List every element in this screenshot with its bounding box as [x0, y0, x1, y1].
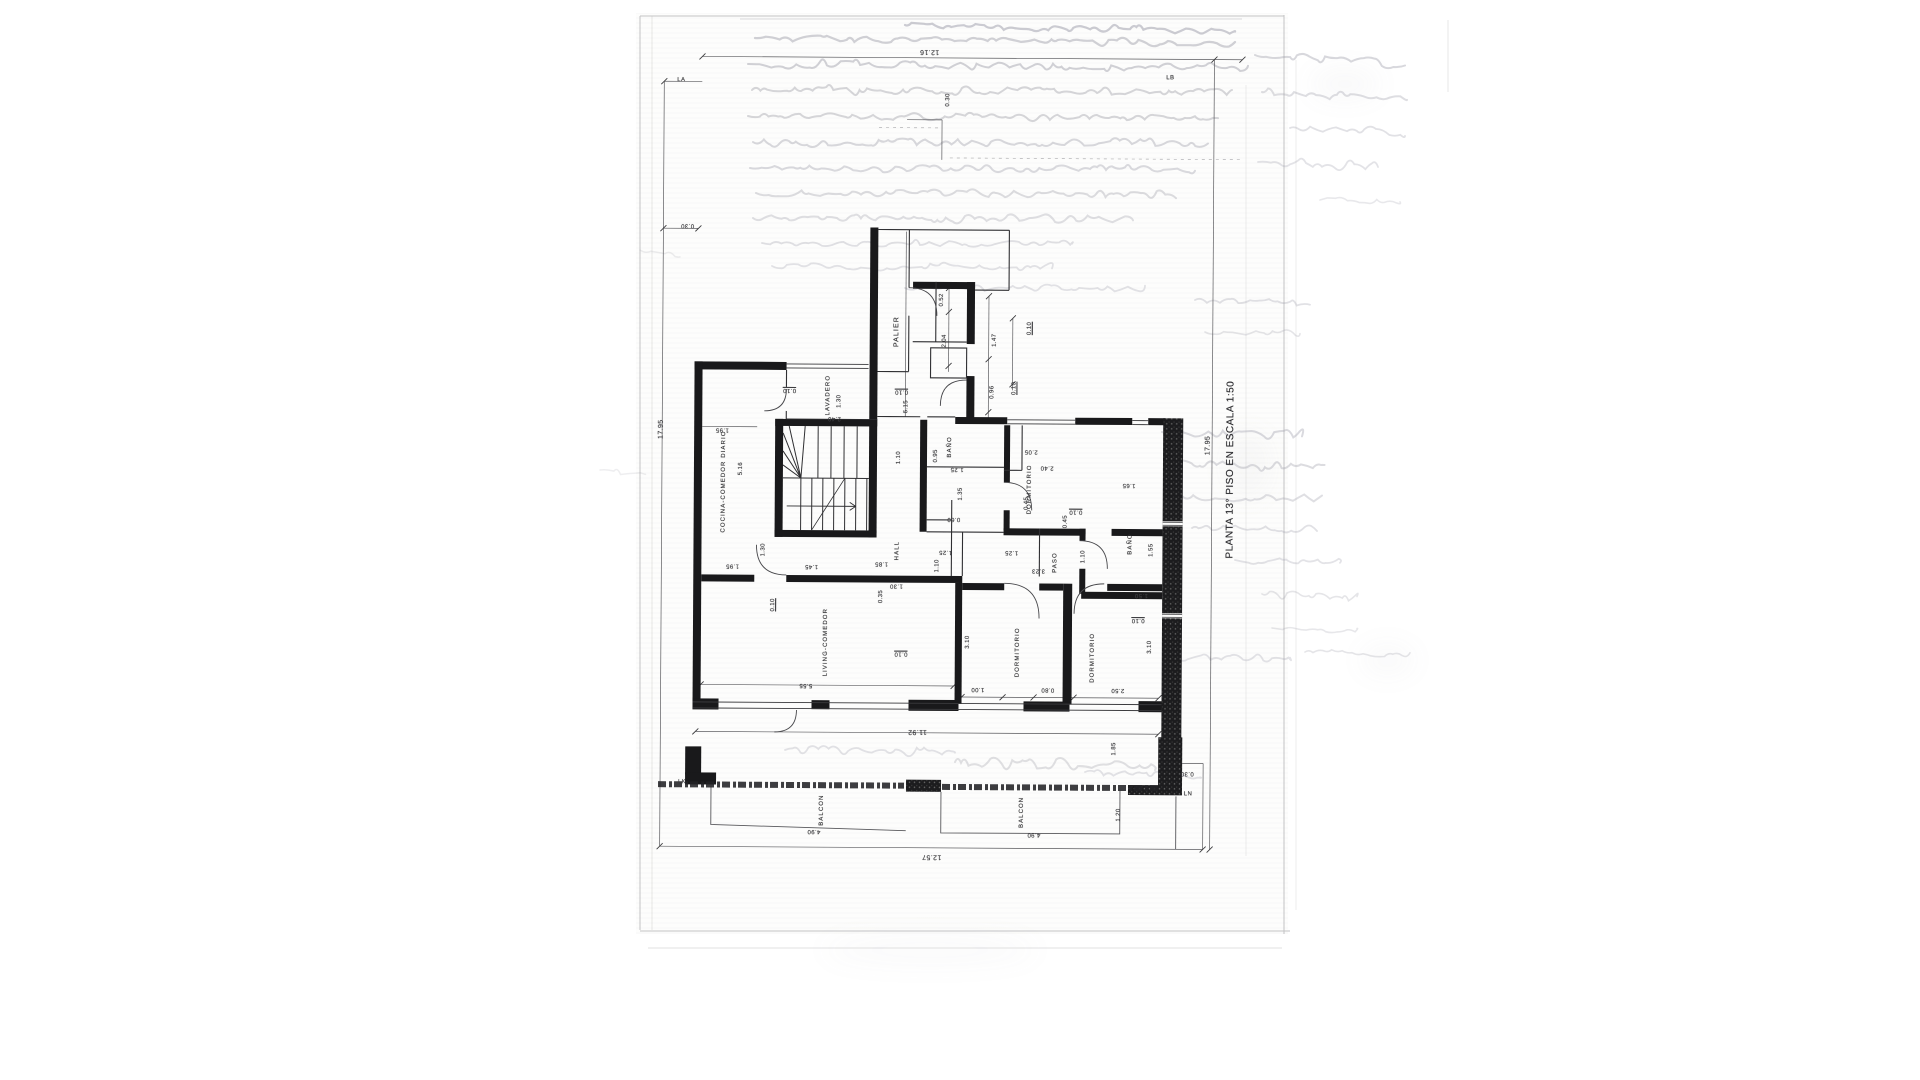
dim-label: 0.10 — [1011, 382, 1017, 395]
dim-label: 0.95 — [933, 449, 939, 462]
room-label-dormitorio-2: DORMITORIO — [1015, 627, 1021, 677]
dim-overall-top: 12.16 — [920, 48, 940, 55]
room-label-balcon-1: BALCON — [819, 795, 825, 826]
plan-title: PLANTA 13° PISO EN ESCALA 1:50 — [1225, 381, 1236, 559]
dim-label: 1.30 — [836, 395, 842, 408]
dim-label: 0.60 — [947, 516, 960, 522]
grid-marker-lb: LB — [1166, 75, 1174, 81]
room-label-banio-1: BAÑO — [947, 436, 953, 457]
dim-label: 1.25 — [950, 466, 963, 472]
room-label-cocina-comedor-diario: COCINA-COMEDOR DIARIO — [721, 430, 728, 532]
room-label-living-comedor: LIVING-COMEDOR — [823, 608, 829, 676]
dim-label: 1.47 — [992, 334, 998, 347]
dim-label: 11.92 — [908, 728, 927, 735]
dim-label: 1.10 — [1080, 550, 1086, 563]
dim-label: 1.10 — [934, 559, 940, 572]
dim-label: 2.40 — [1040, 464, 1053, 470]
dim-label: 5.16 — [738, 462, 744, 475]
dim-label: 0.30 — [681, 222, 694, 228]
dim-label: 1.30 — [760, 543, 766, 556]
dim-label: 1.55 — [1148, 544, 1154, 557]
dim-label: 1.50 — [1135, 592, 1148, 598]
dim-label: 0.96 — [989, 386, 995, 399]
grid-marker-ln: LN — [1184, 791, 1193, 797]
scanned-page: { "document": { "kind": "scanned archite… — [0, 0, 1920, 1080]
plan-labels: PLANTA 13° PISO EN ESCALA 1:50PALIERLAVA… — [0, 0, 1920, 1080]
dim-label: 0.45 — [1063, 515, 1069, 528]
dim-label: 0.52 — [939, 293, 945, 306]
dim-label: 1.95 — [726, 563, 739, 569]
dim-label: 2.04 — [942, 334, 948, 347]
dim-label: 6.15 — [903, 400, 909, 413]
dim-label: 2.05 — [1024, 448, 1037, 454]
dim-label: 1.35 — [958, 487, 964, 500]
dim-label: 3.10 — [1147, 641, 1153, 654]
dim-label: 4.90 — [807, 828, 820, 834]
dim-label: 1.10 — [896, 451, 902, 464]
dim-label: 1.95 — [716, 427, 729, 433]
dim-label: 0.10 — [895, 389, 908, 395]
dim-label: 1.00 — [971, 686, 984, 692]
dim-label: 0.80 — [1041, 686, 1054, 692]
room-label-banio-2: BAÑO — [1127, 533, 1133, 554]
dim-label: 1.85 — [875, 560, 888, 566]
dim-label: 1.65 — [1122, 482, 1135, 488]
dim-label: 2.50 — [1111, 687, 1124, 693]
grid-marker-la: LA — [677, 77, 685, 83]
dim-label: 4.90 — [1027, 831, 1040, 837]
dim-label: 0.10 — [1027, 322, 1033, 335]
room-label-balcon-2: BALCON — [1019, 797, 1025, 828]
dim-label: 0.30 — [1180, 770, 1193, 776]
dim-label: 5.55 — [799, 682, 812, 688]
dim-label: 0.10 — [1131, 617, 1144, 623]
room-label-lavadero: LAVADERO — [825, 375, 831, 416]
dim-label: 3.23 — [1032, 567, 1045, 573]
room-label-hall: HALL — [894, 541, 900, 560]
dim-label: 1.85 — [1111, 742, 1117, 755]
room-label-dormitorio-3: DORMITORIO — [1090, 633, 1096, 683]
room-label-palier: PALIER — [893, 316, 900, 347]
dim-label: 0.45 — [1024, 497, 1030, 510]
dim-label: 1.25 — [1005, 549, 1018, 555]
dim-overall-left: 17.95 — [658, 419, 665, 439]
room-label-paso: PASO — [1052, 552, 1058, 573]
dim-label: 3.10 — [965, 635, 971, 648]
dim-label: 0.10 — [894, 651, 907, 657]
grid-marker-lk: LK — [678, 779, 686, 785]
floor-plan: PLANTA 13° PISO EN ESCALA 1:50PALIERLAVA… — [0, 0, 1920, 1080]
dim-label: 0.10 — [783, 387, 796, 393]
dim-label: 0.35 — [878, 590, 884, 603]
dim-label: 1.45 — [805, 563, 818, 569]
dim-label: 0.10 — [770, 598, 776, 611]
dim-overall-bottom: 12.57 — [922, 853, 942, 860]
dim-overall-right: 17.95 — [1205, 436, 1212, 456]
dim-label: 1.20 — [1116, 808, 1122, 821]
dim-label: 2.40 — [828, 415, 841, 421]
dim-label: 1.25 — [939, 549, 952, 555]
dim-label: 1.30 — [890, 583, 903, 589]
dim-label: 0.10 — [1069, 509, 1082, 515]
dim-label: 0.30 — [945, 93, 951, 106]
